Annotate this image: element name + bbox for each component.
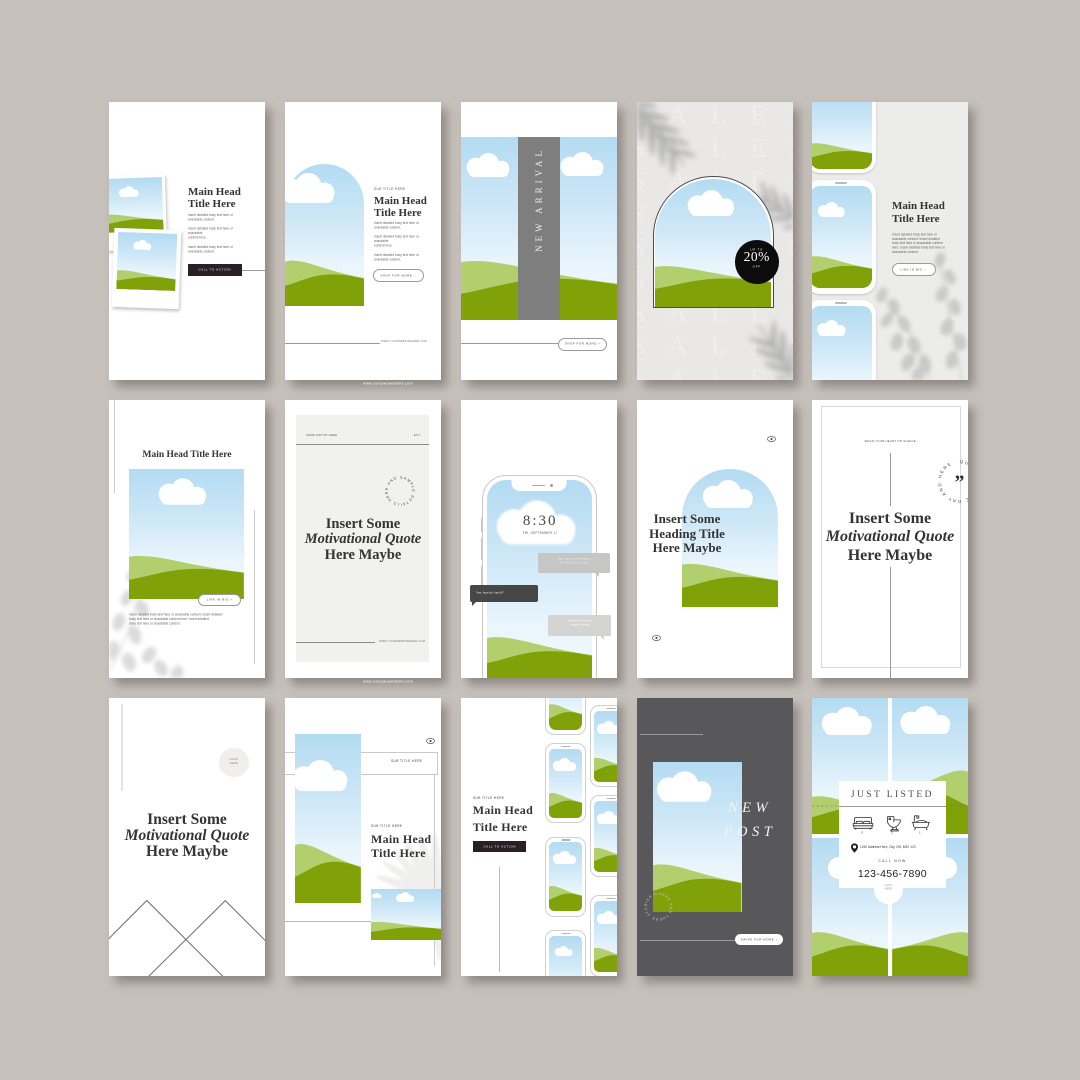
svg-text:SAMPLE DETAILS HERE AND THERE: SAMPLE DETAILS HERE AND THERE [384,475,415,506]
svg-text:”: ” [955,472,965,494]
svg-text:HERE AND THERE STORIES HERE: HERE AND THERE STORIES HERE [643,891,673,921]
